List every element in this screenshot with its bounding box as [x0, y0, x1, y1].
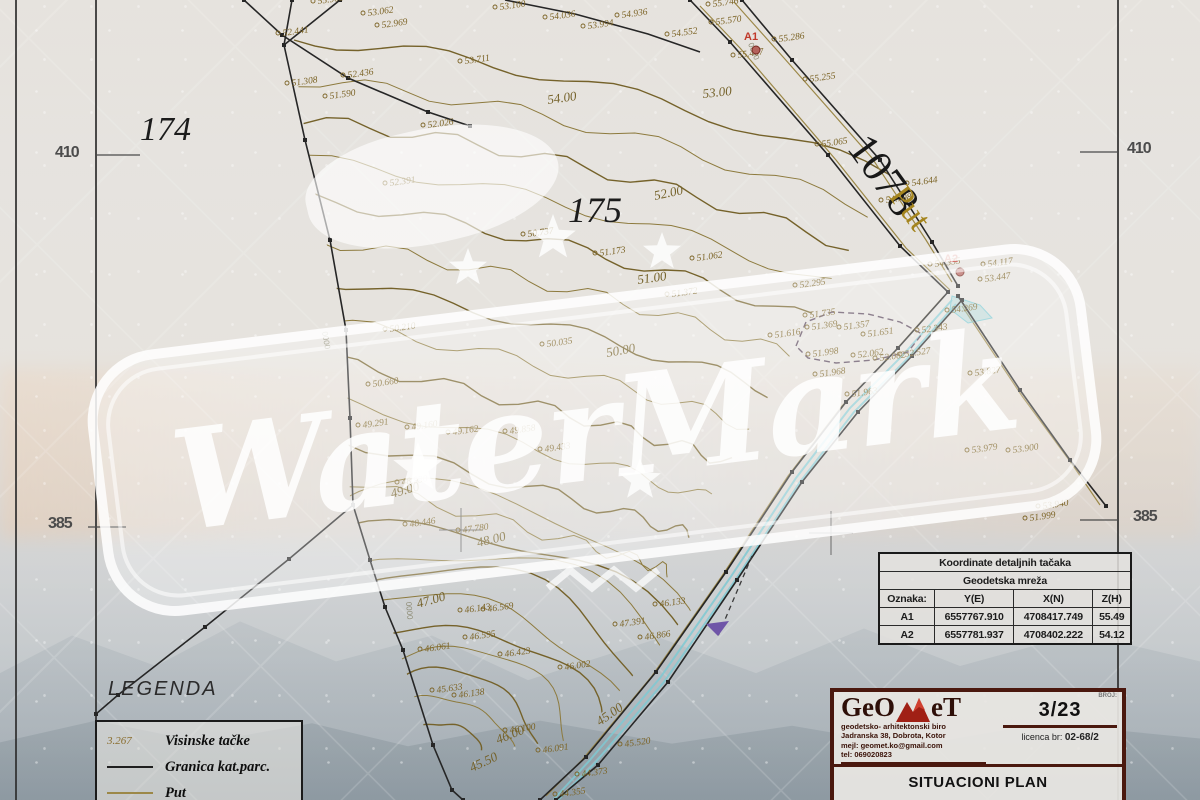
coord-cell: X(N): [1014, 590, 1093, 608]
svg-text:46.569: 46.569: [487, 601, 515, 615]
svg-text:54.036: 54.036: [549, 9, 577, 23]
legend-box: 3.267 Visinske tačke Granica kat.parc. P…: [95, 720, 303, 800]
svg-text:55.570: 55.570: [715, 14, 743, 28]
svg-text:46.061: 46.061: [424, 641, 451, 655]
svg-text:55.908: 55.908: [317, 0, 345, 7]
svg-text:51.173: 51.173: [599, 245, 627, 259]
svg-text:51.616: 51.616: [774, 327, 802, 341]
svg-text:49.858: 49.858: [509, 423, 537, 437]
svg-text:44.373: 44.373: [581, 766, 609, 780]
svg-text:53.940: 53.940: [1042, 498, 1070, 512]
grid-label-385-left: 385: [48, 515, 72, 533]
svg-text:46.595: 46.595: [469, 629, 497, 643]
svg-text:51.963: 51.963: [851, 386, 879, 400]
svg-text:52.343: 52.343: [921, 322, 949, 336]
title-block-sheet-info: BROJ: 3/23 licenca br: 02-68/2: [998, 692, 1122, 764]
boundary-line-sample: [107, 766, 153, 768]
svg-text:51.369: 51.369: [811, 319, 839, 333]
licence-line: licenca br: 02-68/2: [1003, 732, 1117, 743]
svg-text:53.00: 53.00: [702, 83, 733, 101]
svg-text:53.979: 53.979: [971, 442, 999, 456]
svg-text:50.035: 50.035: [546, 336, 574, 350]
coord-cell: 4708417.749: [1014, 608, 1093, 626]
svg-text:A1: A1: [744, 31, 758, 43]
svg-text:53.100: 53.100: [499, 0, 527, 13]
svg-text:52.00: 52.00: [653, 182, 685, 203]
firm-line-1: geodetsko- arhitektonski biro: [841, 722, 998, 731]
svg-text:49.162: 49.162: [452, 424, 480, 438]
geomet-logo: GeO eT: [841, 694, 998, 721]
title-block-rule-left: [841, 762, 986, 765]
svg-text:53.994: 53.994: [587, 18, 615, 32]
coord-cell: Koordinate detaljnih tačaka: [879, 553, 1131, 572]
firm-line-2: Jadranska 38, Dobrota, Kotor: [841, 731, 998, 740]
title-block-firm-info: GeO eT geodetsko- arhitektonski biro Jad…: [834, 692, 998, 764]
svg-text:45.50: 45.50: [467, 749, 500, 775]
svg-text:0000: 0000: [320, 331, 332, 351]
svg-text:50.660: 50.660: [372, 376, 400, 390]
plan-title: SITUACIONI PLAN: [834, 764, 1122, 791]
svg-text:53.827: 53.827: [974, 365, 1003, 379]
svg-text:54.117: 54.117: [987, 256, 1015, 270]
coordinate-table: Koordinate detaljnih tačakaGeodetska mre…: [878, 552, 1132, 645]
svg-text:50.210: 50.210: [389, 321, 417, 335]
svg-text:52.026: 52.026: [427, 117, 455, 131]
svg-text:46.002: 46.002: [564, 659, 592, 673]
svg-text:46.00: 46.00: [494, 722, 527, 747]
svg-text:51.968: 51.968: [819, 366, 847, 380]
svg-text:55.286: 55.286: [778, 31, 806, 45]
svg-text:50.00: 50.00: [605, 340, 637, 360]
svg-text:52.391: 52.391: [389, 175, 416, 189]
svg-text:51.062: 51.062: [696, 250, 724, 264]
legend-item-put: Put: [107, 780, 293, 800]
svg-text:55.746: 55.746: [712, 0, 740, 10]
legend-title: LEGENDA: [108, 678, 218, 701]
svg-text:46.133: 46.133: [659, 596, 687, 610]
road-line-sample: [107, 792, 153, 794]
svg-text:51.590: 51.590: [329, 88, 357, 102]
firm-line-3: mejl: geomet.ko@gmail.com: [841, 741, 998, 750]
svg-text:55.065: 55.065: [821, 136, 849, 150]
svg-text:52.295: 52.295: [799, 277, 827, 291]
title-block: GeO eT geodetsko- arhitektonski biro Jad…: [830, 688, 1126, 800]
svg-text:54.936: 54.936: [621, 7, 649, 21]
svg-text:46.091: 46.091: [542, 742, 569, 756]
elevation-point-sample: 3.267: [107, 735, 132, 747]
coord-cell: 55.49: [1093, 608, 1131, 626]
coord-cell: Z(H): [1093, 590, 1131, 608]
coord-cell: Geodetska mreža: [879, 572, 1131, 590]
coord-cell: A1: [879, 608, 935, 626]
svg-text:52.441: 52.441: [282, 25, 309, 39]
svg-text:50.737: 50.737: [527, 226, 556, 240]
svg-text:47.391: 47.391: [619, 616, 646, 630]
coord-cell: A2: [879, 626, 935, 645]
coord-cell: Y(E): [935, 590, 1014, 608]
svg-text:52.436: 52.436: [347, 67, 375, 81]
svg-text:51.735: 51.735: [809, 307, 837, 321]
logo-mountain-icon: [896, 698, 930, 722]
svg-text:51.00: 51.00: [636, 268, 668, 287]
coord-cell: 6557781.937: [935, 626, 1014, 645]
firm-line-4: tel: 069020823: [841, 750, 998, 759]
svg-text:54.552: 54.552: [671, 26, 699, 40]
svg-text:46.423: 46.423: [504, 646, 532, 660]
svg-text:49.291: 49.291: [362, 417, 389, 431]
grid-label-410-right: 410: [1127, 140, 1151, 158]
svg-text:174: 174: [140, 111, 191, 148]
svg-text:46.866: 46.866: [644, 629, 672, 643]
coord-cell: Oznaka:: [879, 590, 935, 608]
legend-item-visinske-tacke: 3.267 Visinske tačke: [107, 728, 293, 754]
svg-text:175: 175: [568, 190, 622, 230]
svg-text:52.969: 52.969: [381, 17, 409, 31]
svg-text:47.00: 47.00: [415, 588, 448, 611]
grid-label-385-right: 385: [1133, 508, 1157, 526]
sheet-number: 3/23: [1003, 699, 1117, 722]
situacioni-plan-canvas: 55.90853.06252.96952.44151.30851.59052.0…: [0, 0, 1200, 800]
svg-text:51.999: 51.999: [1029, 510, 1057, 524]
svg-text:51.651: 51.651: [867, 326, 894, 340]
svg-text:45.520: 45.520: [624, 736, 652, 750]
svg-text:48.446: 48.446: [409, 516, 437, 530]
svg-text:53.062: 53.062: [367, 5, 395, 19]
svg-text:A2: A2: [944, 253, 958, 265]
svg-text:53.900: 53.900: [1012, 442, 1040, 456]
svg-text:0000: 0000: [404, 601, 415, 620]
grid-label-410-left: 410: [55, 144, 79, 162]
legend-item-granica: Granica kat.parc.: [107, 754, 293, 780]
svg-text:49.433: 49.433: [544, 441, 572, 455]
svg-text:51.372: 51.372: [671, 286, 699, 300]
svg-text:49.160: 49.160: [411, 419, 439, 433]
coord-cell: 4708402.222: [1014, 626, 1093, 645]
coord-cell: 6557767.910: [935, 608, 1014, 626]
svg-text:53.447: 53.447: [984, 271, 1013, 285]
svg-text:54.00: 54.00: [546, 88, 578, 107]
coord-cell: 54.12: [1093, 626, 1131, 645]
svg-text:51.998: 51.998: [812, 346, 840, 360]
svg-text:55.255: 55.255: [809, 71, 837, 85]
title-block-rule-right: [1003, 725, 1117, 728]
